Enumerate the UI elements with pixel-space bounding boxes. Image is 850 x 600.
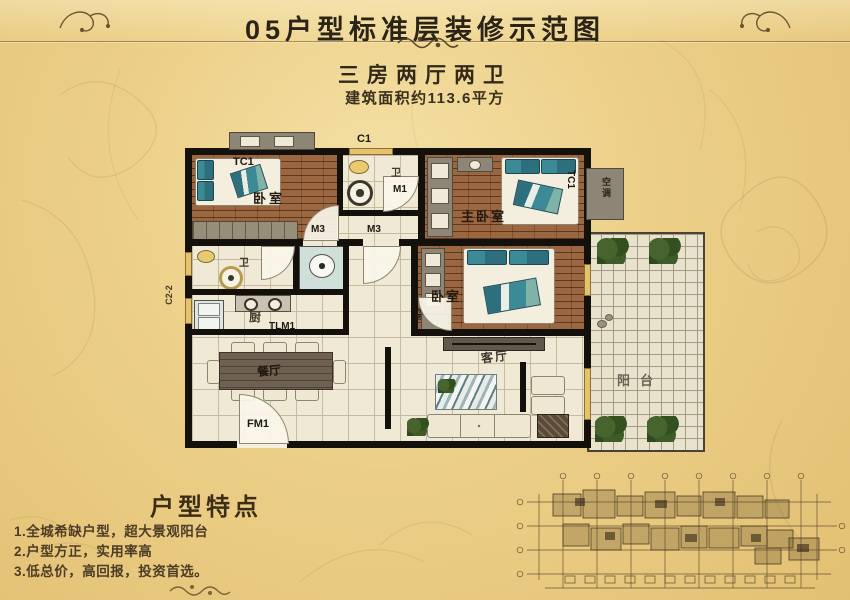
features-title: 户型特点 [56, 487, 356, 522]
master-label: 主卧室 [461, 206, 506, 225]
wall [411, 246, 418, 336]
code-tc1: TC1 [565, 170, 576, 189]
building-floor-plate-diagram [505, 468, 850, 600]
balcony-plant-icon [649, 238, 681, 264]
corner-flourish-left-icon [58, 8, 112, 38]
kitchen-sink [194, 300, 224, 332]
armchair [531, 396, 565, 415]
toilet-icon [219, 266, 243, 290]
kitchen-label: 厨 [249, 308, 261, 325]
balcony-plant-icon [597, 238, 629, 264]
wall [418, 148, 425, 246]
code-m1: M1 [393, 184, 407, 195]
dining-label: 餐厅 [256, 361, 281, 380]
window [349, 148, 393, 155]
building-area-text: 建筑面积约113.6平方 [0, 87, 850, 108]
toilet-icon [347, 180, 373, 206]
features-ornament-icon [168, 583, 232, 597]
code-fm1: FM1 [247, 418, 269, 430]
bedroom1-label: 卧室 [253, 188, 285, 207]
sofa [427, 414, 531, 438]
balcony-label: 阳台 [617, 370, 663, 389]
feature-item: 1.全城希缺户型，超大景观阳台 [14, 522, 344, 542]
feature-item: 2.户型方正，实用率高 [14, 542, 344, 562]
pillow-icon [467, 250, 507, 265]
wall [411, 329, 591, 336]
bedroom2-label: 卧室 [431, 286, 461, 305]
armchair [531, 376, 565, 395]
pebble-icon [605, 314, 613, 321]
floor-plant-icon [438, 379, 456, 393]
window [584, 264, 591, 296]
code-m3: M3 [311, 224, 325, 235]
washbasin-icon [197, 250, 215, 263]
bath2-label: 卫 [239, 254, 249, 269]
living-label: 客厅 [480, 347, 510, 367]
washbasin-icon [349, 160, 369, 174]
wardrobe [192, 221, 298, 241]
wall [520, 362, 526, 412]
wall [343, 246, 349, 335]
pillow-icon [197, 181, 214, 201]
divider-ornament-icon [396, 34, 460, 50]
side-table [537, 414, 569, 438]
bath1-label: 卫 [391, 164, 401, 179]
code-m3: M3 [367, 224, 381, 235]
pillow-icon [197, 160, 214, 180]
balcony-plant-icon [595, 416, 627, 442]
wall [185, 289, 349, 295]
floor-plan: 阳台 [185, 132, 705, 452]
poster: 05户型标准层装修示范图 三房两厅两卫 建筑面积约113.6平方 [0, 0, 850, 600]
code-tc1: TC1 [233, 156, 254, 168]
rug [435, 374, 497, 410]
corner-flourish-right-icon [738, 8, 792, 38]
wall [385, 347, 391, 429]
wall [185, 239, 303, 246]
features-list: 1.全城希缺户型，超大景观阳台 2.户型方正，实用率高 3.低总价，高回报，投资… [14, 522, 344, 582]
window [185, 252, 192, 276]
code-m3: M3 [414, 309, 423, 320]
floor-plant-icon [407, 418, 429, 436]
ac-platform [229, 132, 315, 150]
balcony: 阳台 [587, 232, 705, 452]
window [185, 298, 192, 324]
dresser [457, 157, 493, 172]
wardrobe [427, 157, 453, 237]
pillow-icon [505, 159, 540, 174]
ac-platform: 空调 [586, 168, 624, 220]
code-c2-2: C2-2 [164, 285, 174, 305]
wall [337, 210, 425, 216]
code-c1: C1 [357, 133, 371, 145]
ac-label: 空调 [600, 177, 613, 199]
dining-chair [333, 360, 346, 384]
balcony-plant-icon [647, 416, 679, 442]
pillow-icon [509, 250, 549, 265]
wall [185, 329, 349, 335]
stove [235, 295, 291, 312]
wall [399, 239, 591, 246]
pebble-icon [597, 320, 607, 328]
round-sink-icon [309, 254, 335, 278]
code-tlm1: TLM1 [269, 321, 295, 332]
feature-item: 3.低总价，高回报，投资首选。 [14, 562, 344, 582]
wall [337, 239, 363, 246]
layout-type-text: 三房两厅两卫 [0, 59, 850, 89]
balcony-door [584, 368, 591, 420]
